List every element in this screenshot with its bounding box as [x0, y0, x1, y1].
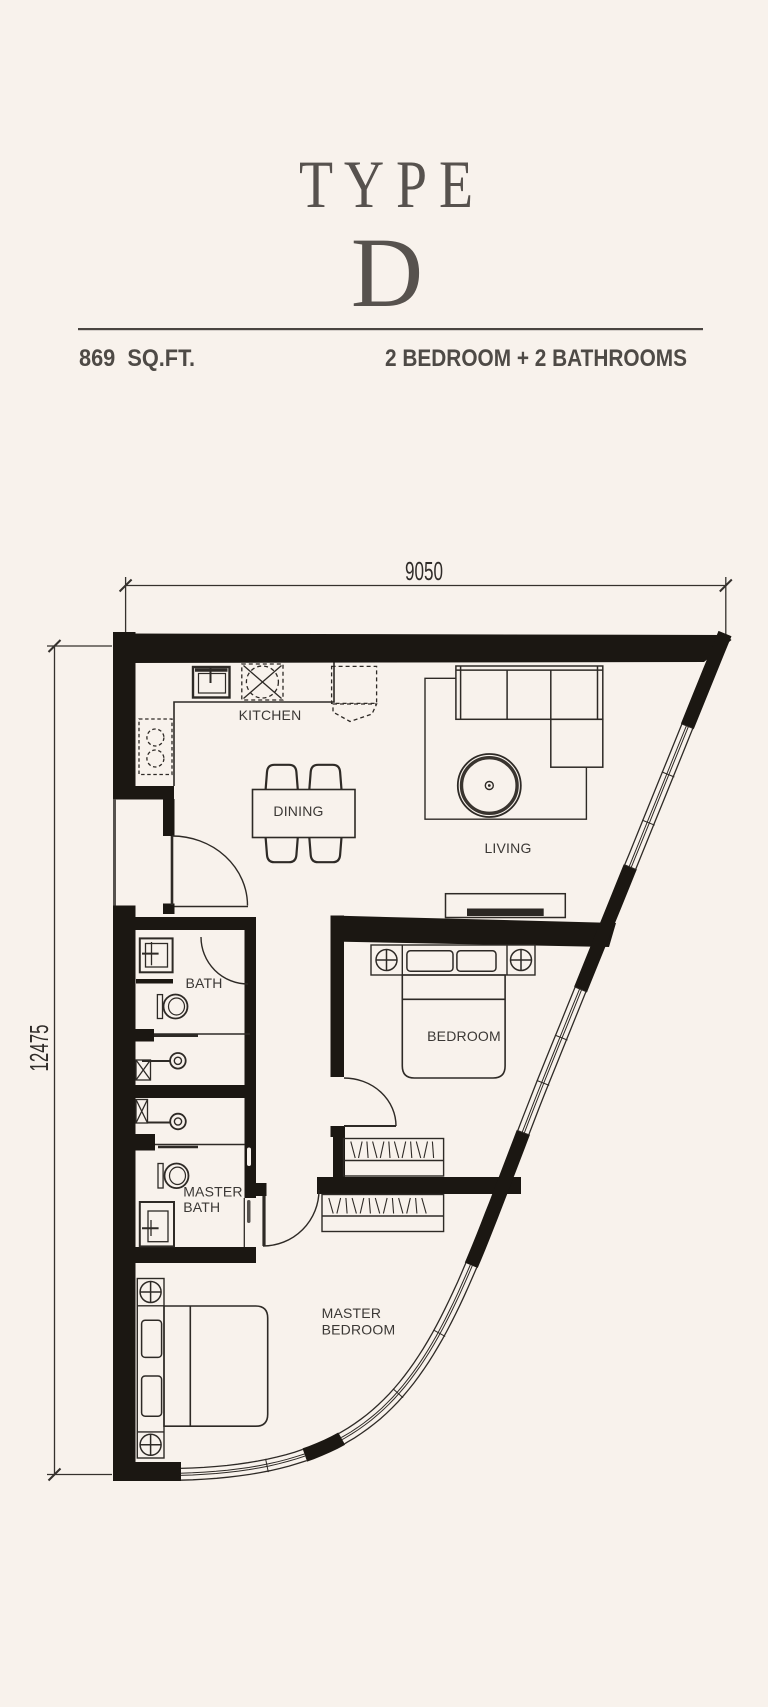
svg-text:2 BEDROOM + 2 BATHROOMS: 2 BEDROOM + 2 BATHROOMS — [385, 345, 687, 372]
svg-text:T Y P E: T Y P E — [299, 146, 473, 222]
svg-text:BEDROOM: BEDROOM — [427, 1028, 501, 1044]
svg-text:MASTER: MASTER — [183, 1184, 243, 1200]
svg-text:MASTER: MASTER — [322, 1305, 382, 1321]
svg-text:869 SQ.FT.: 869 SQ.FT. — [79, 345, 195, 372]
svg-text:DINING: DINING — [273, 803, 323, 819]
svg-text:BEDROOM: BEDROOM — [322, 1322, 396, 1338]
svg-text:KITCHEN: KITCHEN — [239, 707, 302, 723]
svg-text:9050: 9050 — [405, 556, 443, 586]
svg-text:BATH: BATH — [183, 1199, 220, 1215]
svg-text:LIVING: LIVING — [484, 840, 531, 856]
svg-text:D: D — [351, 217, 423, 328]
svg-text:12475: 12475 — [24, 1025, 54, 1072]
svg-text:BATH: BATH — [185, 975, 222, 991]
